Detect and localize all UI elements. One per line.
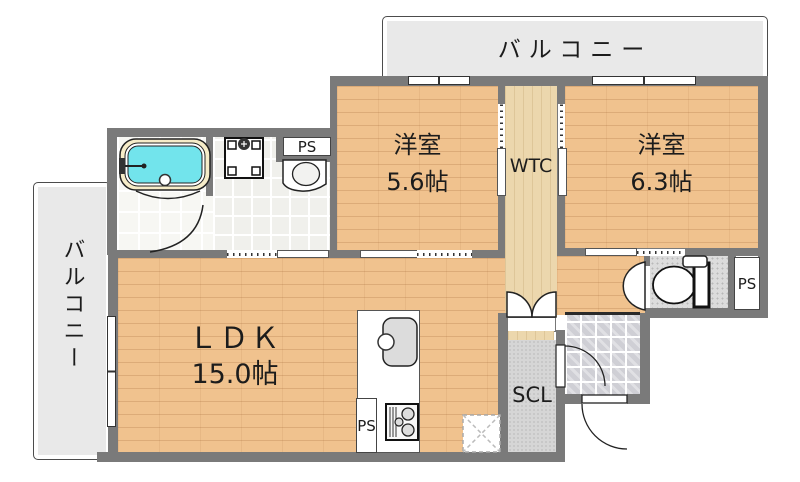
wall	[97, 452, 565, 462]
bedroom1-name: 洋室	[337, 130, 498, 160]
bedroom2-name: 洋室	[565, 130, 758, 160]
scl-label: SCL	[508, 382, 556, 408]
bedroom1-door-opening	[360, 250, 419, 258]
bathroom-floor	[117, 137, 213, 255]
wall	[107, 128, 117, 255]
window	[592, 76, 696, 85]
wall	[556, 386, 565, 462]
washroom-door-opening	[277, 250, 329, 258]
ps-toilet: PS	[734, 257, 760, 310]
ldk-size: 15.0帖	[140, 358, 330, 392]
wall	[557, 248, 585, 256]
sliding-door-track	[637, 249, 685, 256]
entrance-door-swing	[582, 404, 627, 449]
closet-sill	[507, 317, 556, 332]
ldk-label: ＬＤＫ 15.0帖	[140, 320, 330, 392]
wtc-floor	[505, 86, 557, 317]
bedroom2-size: 6.3帖	[565, 167, 758, 197]
ps-kitchen: PS	[356, 398, 377, 453]
bedroom1-size: 5.6帖	[337, 167, 498, 197]
wtc-label: WTC	[505, 155, 557, 179]
closet-strip-floor	[508, 331, 554, 340]
toilet-floor	[650, 256, 730, 308]
wall	[556, 330, 565, 346]
window	[107, 316, 116, 427]
balcony-top-label: バルコニー	[455, 36, 695, 65]
scl-door-leaf	[556, 345, 565, 387]
wall	[640, 313, 650, 404]
ldk-name: ＬＤＫ	[140, 320, 330, 356]
wall	[627, 394, 650, 404]
closet-door-track	[498, 104, 505, 148]
wall	[206, 137, 213, 196]
sliding-door-track	[417, 250, 472, 258]
sliding-door-track	[227, 250, 277, 258]
entrance-floor	[565, 315, 640, 398]
bedroom1-label: 洋室 5.6帖	[337, 130, 498, 197]
window	[408, 76, 470, 85]
entrance-step	[565, 312, 640, 315]
ps-washroom: PS	[283, 137, 331, 156]
wall	[330, 76, 337, 255]
bedroom2-door-opening	[585, 248, 637, 256]
closet-door-track	[558, 104, 565, 148]
hallway-floor	[557, 256, 645, 315]
balcony-left-label: バルコニー	[58, 238, 86, 373]
wall	[330, 76, 768, 86]
floor-plan: バルコニー バルコニー P	[0, 0, 800, 482]
wall	[644, 256, 650, 266]
wall	[498, 313, 508, 462]
bedroom2-label: 洋室 6.3帖	[565, 130, 758, 197]
